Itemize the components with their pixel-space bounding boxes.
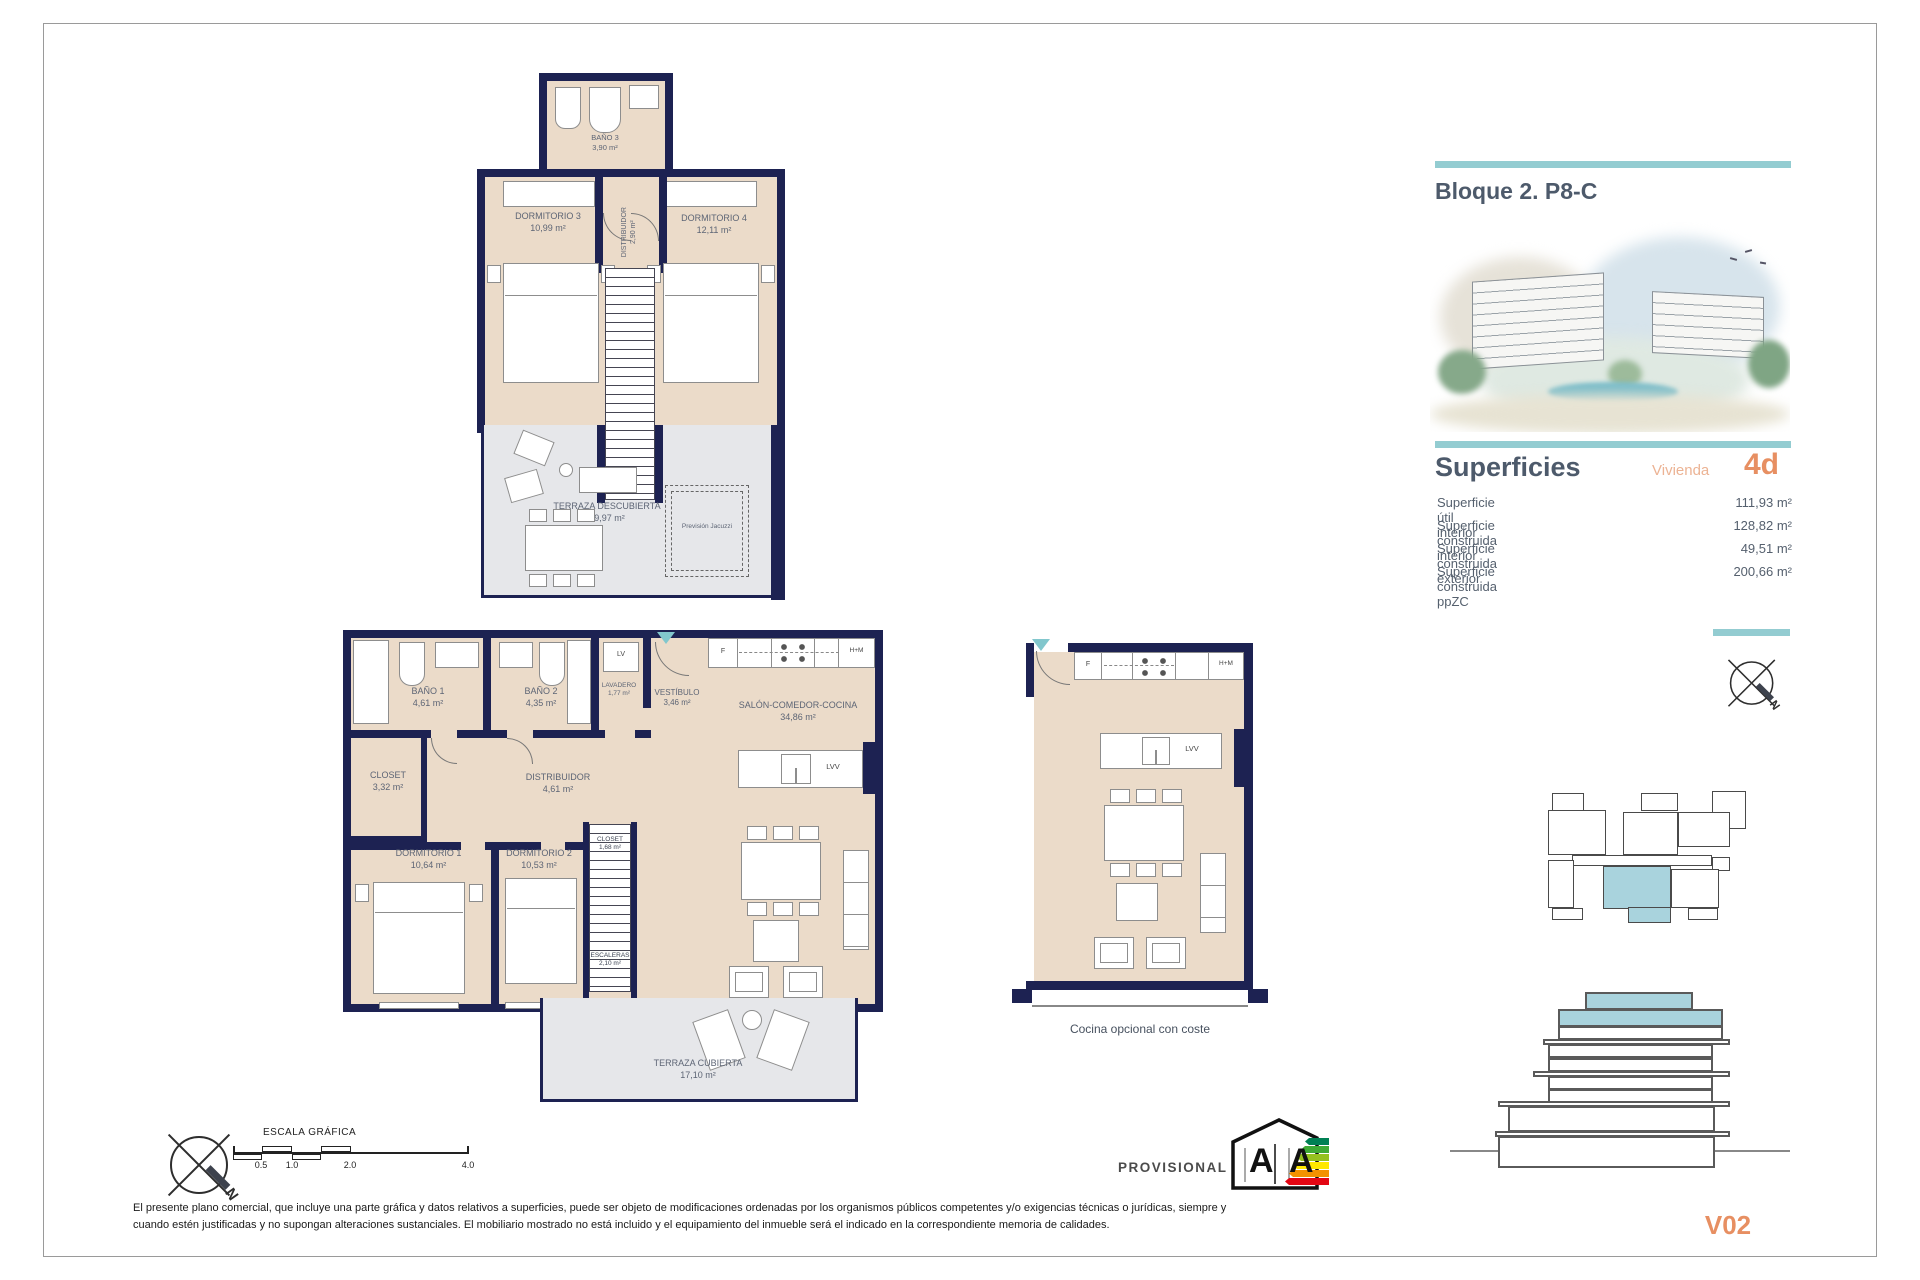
toilet-icon [399,642,425,686]
superficies-heading: Superficies [1435,452,1581,483]
closet-icon [665,181,757,207]
door-opening [605,730,635,738]
scale-baseline [233,1152,469,1154]
jacuzzi-label: Previsión Jacuzzi [667,523,747,531]
coffee-table-icon [1116,883,1158,921]
disclaimer-line-2: cuando estén justificadas y no supongan … [133,1217,1348,1234]
wall [771,425,785,600]
bed-icon [505,878,577,984]
toilet-icon [539,642,565,686]
upper-floor-plan: BAÑO 33,90 m² DISTRIBUIDOR2,90 m² DORMIT… [477,73,785,600]
chair-icon [577,574,595,587]
stove-icon [1132,652,1176,680]
dishwasher-label: LVV [1172,744,1212,754]
elevation-highlighted-penthouse [1585,992,1693,1010]
faucet-icon [1155,750,1157,765]
fridge-label: F [1074,660,1102,669]
nightstand-icon [469,884,483,902]
bed-icon [373,882,465,994]
energy-rating-logo: A A [1225,1114,1329,1196]
room-label-lavadero: LAVADERO1,77 m² [593,682,645,699]
washbasin-icon [499,642,533,668]
counter-dash [1104,665,1174,666]
render-building [1652,291,1764,359]
armchair-cushion [1152,943,1180,963]
chair-icon [553,574,571,587]
keyplan-highlighted-unit [1603,866,1671,909]
chair-icon [799,826,819,840]
nightstand-icon [487,265,501,283]
room-label-dormitorio3: DORMITORIO 310,99 m² [493,211,603,234]
oven-label: H+M [838,647,875,655]
provisional-label: PROVISIONAL [1118,1160,1228,1175]
room-label-vestibulo: VESTÍBULO3,46 m² [643,688,711,709]
chair-icon [1162,789,1182,803]
render-bird [1745,249,1752,253]
chair-icon [1110,863,1130,877]
shower-icon [353,640,389,724]
energy-letter: A [1289,1142,1314,1181]
keyplan-unit [1641,793,1678,811]
room-label-distribuidor-up: DISTRIBUIDOR2,90 m² [620,194,638,270]
sofa-icon [1200,853,1226,933]
room-label-bano1: BAÑO 14,61 m² [373,686,483,709]
elevation-floor [1498,1136,1715,1168]
elevation-floor [1548,1089,1713,1103]
scale-tick [233,1146,235,1154]
side-table-icon [742,1010,762,1030]
elevation-floor [1508,1106,1715,1132]
scale-tick-label: 0.5 [248,1160,274,1170]
keyplan-unit [1552,908,1583,920]
door-opening [431,730,457,738]
keyplan-unit [1623,812,1678,855]
render-tree [1748,340,1790,388]
energy-letter: A [1249,1142,1274,1181]
wall [483,638,491,736]
page-title: Bloque 2. P8-C [1435,178,1597,205]
nightstand-icon [355,884,369,902]
disclaimer-line-1: El presente plano comercial, que incluye… [133,1200,1348,1217]
teal-divider [1435,161,1791,168]
wall [655,425,663,503]
chair-icon [529,574,547,587]
dining-table-icon [741,842,821,900]
oven-label: H+M [1208,660,1244,668]
bed-line [507,908,575,909]
teal-divider [1435,441,1791,448]
table-icon [579,467,637,493]
room-label-dormitorio2: DORMITORIO 210,53 m² [497,848,581,871]
fridge-label: F [708,647,738,656]
room-label-closet: CLOSET3,32 m² [353,770,423,793]
chair-icon [529,509,547,522]
armchair-cushion [1100,943,1128,963]
toilet-icon [555,87,581,129]
compass-icon: N [1722,655,1788,721]
teal-divider-small [1713,629,1790,636]
stove-icon [771,638,815,668]
elevation-floor [1548,1058,1713,1072]
keyplan-unit [1678,812,1730,847]
keyplan-corridor [1572,855,1712,866]
chair-icon [553,509,571,522]
bed-line [505,295,597,296]
washer-label: LV [603,650,639,659]
scale-segment [321,1146,351,1152]
terrace-edge [1032,1005,1248,1007]
armchair-cushion [735,972,763,992]
keyplan-unit [1688,908,1718,920]
elevation-floor [1548,1044,1713,1058]
sink-icon [589,87,621,133]
graphic-scale: ESCALA GRÁFICA 0.5 1.0 2.0 4.0 [233,1126,493,1174]
stairs-icon [605,268,655,500]
superficie-row-value: 200,66 m² [1672,564,1792,579]
scale-tick-label: 4.0 [455,1160,481,1170]
chair-icon [1136,863,1156,877]
room-label-distribuidor: DISTRIBUIDOR4,61 m² [503,772,613,795]
sofa-icon [843,850,869,950]
building-elevation [1450,988,1790,1183]
version-label: V02 [1688,1210,1768,1241]
superficie-row-value: 128,82 m² [1672,518,1792,533]
render-ground [1430,394,1790,432]
entrance-arrow-icon [1032,639,1050,651]
superficie-row-label: Superficie construida ppZC [1437,564,1497,609]
keyplan-highlighted-unit-notch [1628,907,1671,923]
room-label-dormitorio4: DORMITORIO 412,11 m² [659,213,769,236]
elevation-floor [1558,1026,1723,1040]
wall [1248,989,1268,1003]
optional-kitchen-plan: F H+M LVV [1012,637,1268,1019]
dining-table-icon [1104,805,1184,861]
vivienda-value: 4d [1744,448,1779,482]
chair-icon [1110,789,1130,803]
counter-dash [739,652,839,653]
chair-icon [773,826,793,840]
optional-kitchen-caption: Cocina opcional con coste [1012,1022,1268,1038]
window-icon [379,1002,459,1009]
shower-icon [567,640,591,724]
elevation-highlighted-floor [1558,1009,1723,1027]
closet-icon [503,181,595,207]
wall [1244,643,1253,989]
bed-icon [503,263,599,383]
room-label-salon: SALÓN-COMEDOR-COCINA34,86 m² [723,700,873,723]
elevation-floor [1548,1076,1713,1090]
nightstand-icon [761,265,775,283]
main-floor-plan: LV BAÑO 14,61 m² BAÑO 24,35 m² LAVADERO1… [343,630,883,1012]
unit-key-plan [1545,790,1750,928]
vivienda-label: Vivienda [1652,462,1709,479]
keyplan-unit [1552,793,1584,811]
legal-disclaimer: El presente plano comercial, que incluye… [133,1200,1348,1233]
dishwasher-label: LVV [813,762,853,772]
faucet-icon [795,768,797,784]
keyplan-unit [1671,869,1719,908]
chair-icon [1162,863,1182,877]
room-label-bano2: BAÑO 24,35 m² [493,686,589,709]
wall [1026,981,1252,990]
scale-tick-label: 2.0 [337,1160,363,1170]
chair-icon [773,902,793,916]
building-render-image [1430,222,1790,432]
washbasin-icon [629,85,659,109]
coffee-table-icon [753,920,799,962]
wall [863,742,875,794]
render-bird [1760,261,1766,264]
dining-table-icon [525,525,603,571]
keyplan-unit [1548,810,1606,855]
scale-segment [262,1146,292,1152]
room-label-escaleras: ESCALERAS2,10 m² [581,952,639,969]
superficie-row-value: 49,51 m² [1672,541,1792,556]
chair-icon [1136,789,1156,803]
scale-tick-label: 1.0 [279,1160,305,1170]
chair-icon [799,902,819,916]
door-opening [507,730,533,738]
wall [1026,643,1034,697]
superficie-row-value: 111,93 m² [1672,495,1792,510]
wall [1234,729,1244,787]
keyplan-unit [1548,860,1574,908]
chair-icon [747,826,767,840]
room-label-dormitorio1: DORMITORIO 110,64 m² [371,848,486,871]
wall [1012,989,1032,1003]
render-building [1472,272,1604,369]
wall [1068,643,1252,652]
chair-icon [577,509,595,522]
armchair-cushion [789,972,817,992]
room-label-bano3: BAÑO 33,90 m² [557,133,653,153]
room-label-terraza-cubierta: TERRAZA CUBIERTA17,10 m² [598,1058,798,1081]
scale-title: ESCALA GRÁFICA [263,1126,393,1139]
chair-icon [747,902,767,916]
bed-line [665,295,757,296]
bed-icon [663,263,759,383]
plan-sheet: { "panel": { "title": "Bloque 2. P8-C", … [0,0,1920,1280]
covered-terrace: TERRAZA CUBIERTA17,10 m² [540,998,858,1102]
room-label-closet2: CLOSET1,68 m² [583,836,637,853]
terrace-floor [540,998,858,1102]
washbasin-icon [435,642,479,668]
render-tree [1438,350,1486,394]
bed-line [375,912,463,913]
side-table-icon [559,463,573,477]
scale-tick [467,1146,469,1154]
